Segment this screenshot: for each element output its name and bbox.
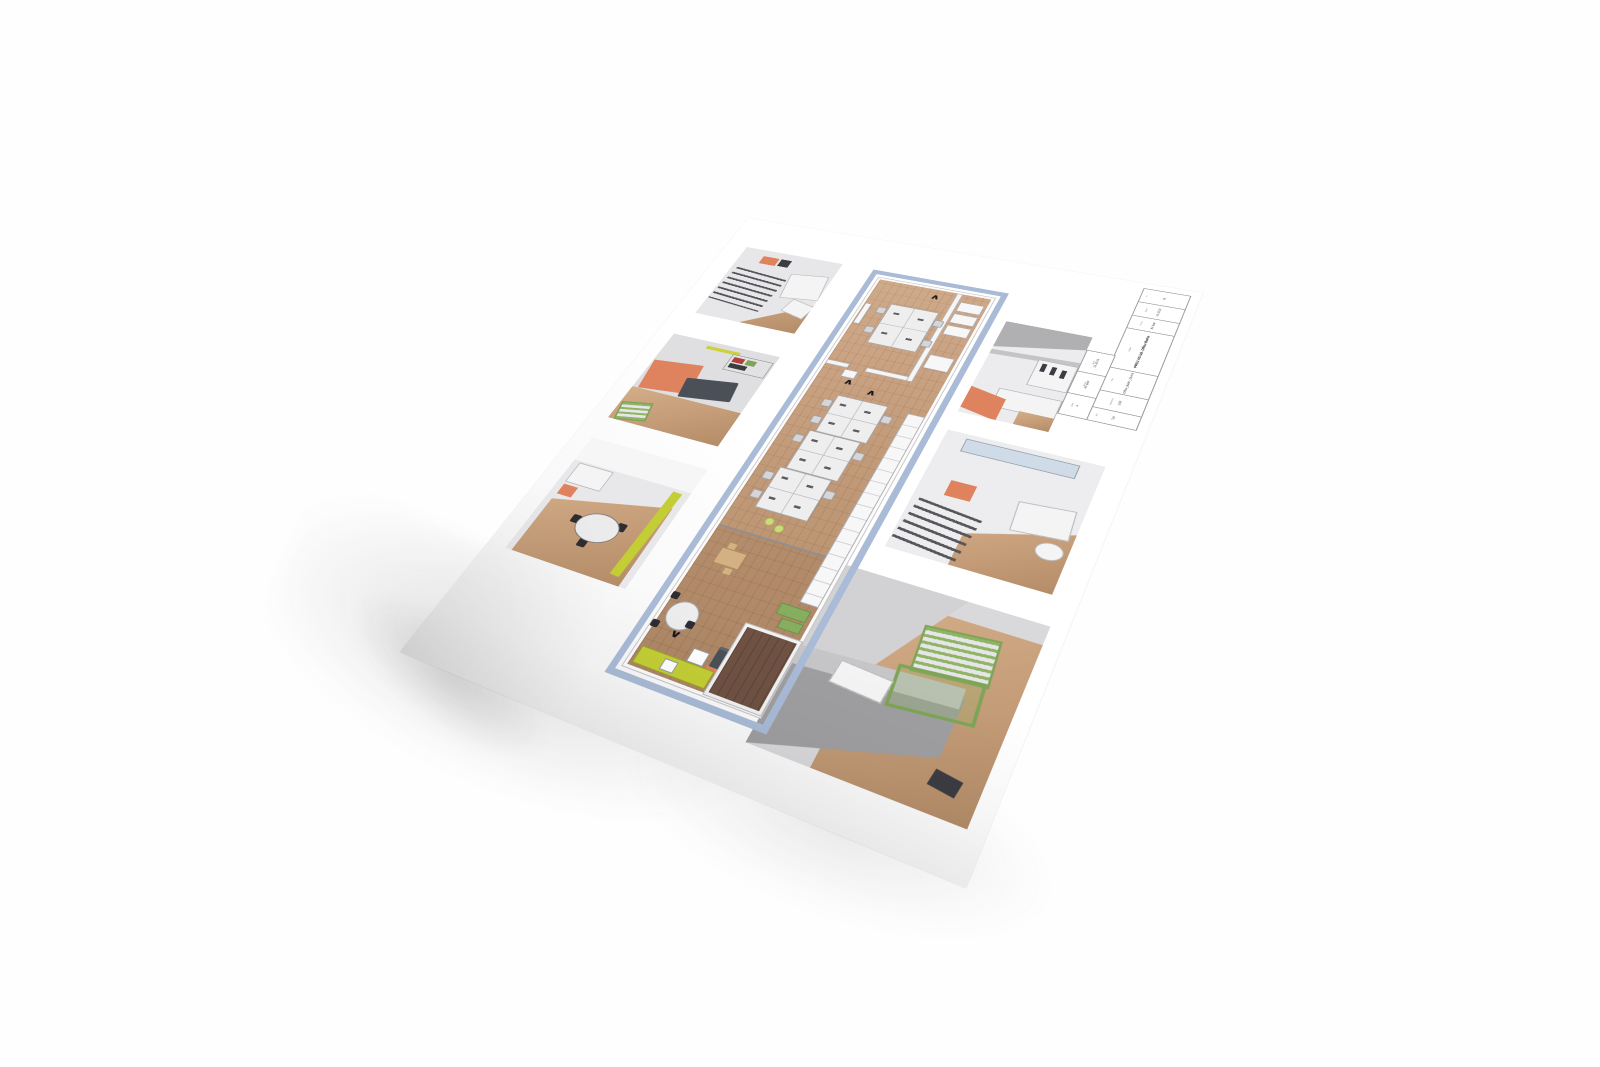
- mockup-canvas: ∧ ∧ ∧ ∨ ∨: [0, 0, 1600, 1067]
- dark-cabinet: [777, 259, 792, 267]
- render-lounge-orange-rug-view: [608, 334, 780, 447]
- skylight-band: [960, 439, 1081, 480]
- sink: [659, 658, 679, 674]
- white-desks: [779, 274, 829, 301]
- shelf-rows: [708, 267, 786, 312]
- monitor: [1059, 370, 1067, 379]
- monitor: [1049, 367, 1057, 376]
- monitor: [1039, 364, 1047, 373]
- wall-shelf: [722, 354, 774, 379]
- orange-wall-art: [557, 484, 578, 498]
- orange-wall-art: [944, 480, 977, 502]
- render-office-shelving-view: [695, 247, 843, 334]
- dark-sofa: [677, 378, 739, 403]
- paper-sheet: ∧ ∧ ∧ ∨ ∨: [400, 218, 1203, 888]
